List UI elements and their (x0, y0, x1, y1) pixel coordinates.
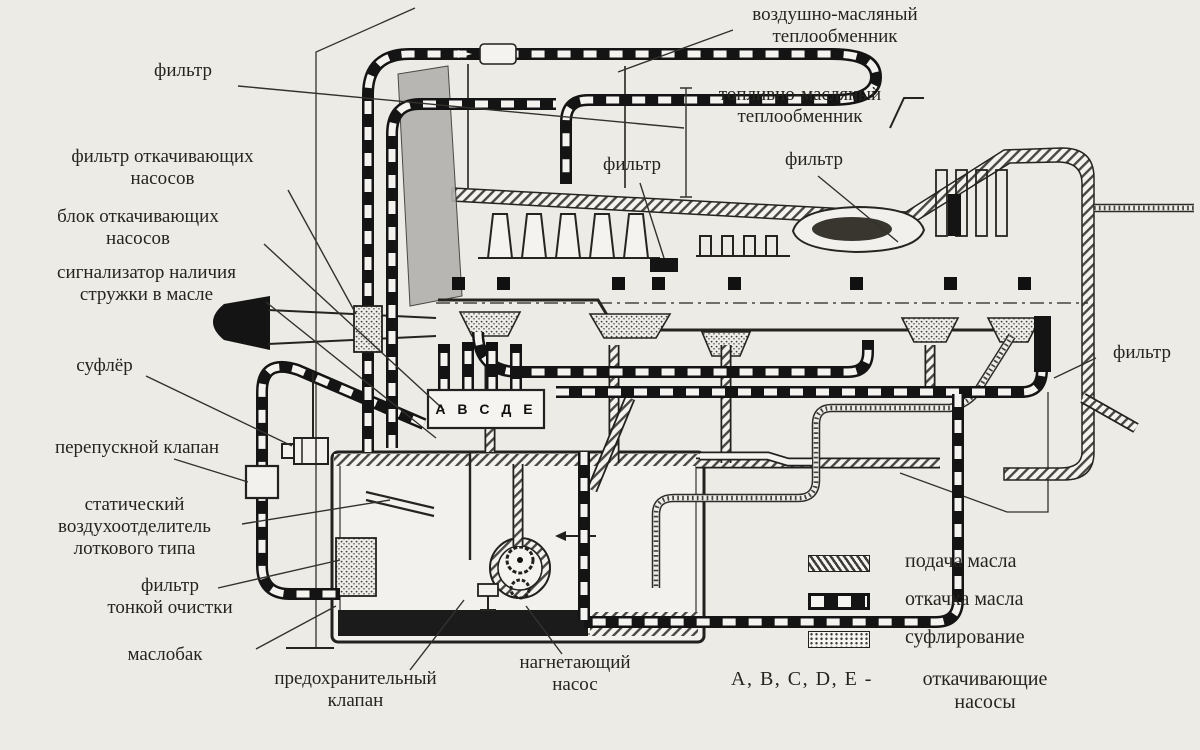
sump-funnels (460, 312, 1040, 356)
legend-label-supply: подача масла (905, 550, 1016, 573)
label-scavenge-pumps-filter: фильтр откачивающих насосов (40, 146, 285, 190)
bypass-valve-element (246, 466, 278, 498)
legend-label-scavenge: откачка масла (905, 588, 1023, 611)
label-pressure-pump: нагнетающий насос (494, 652, 656, 696)
pipe-coupling (480, 44, 516, 64)
oil-level (338, 610, 588, 636)
front-filter-element (650, 258, 678, 272)
rear-filter-element (1034, 316, 1051, 372)
pump-block-letters: А В С Д Е (428, 401, 544, 417)
label-fine-filter: фильтр тонкой очистки (60, 575, 280, 619)
oil-system-diagram-page: воздушно-масляный теплообменник фильтр т… (0, 0, 1200, 750)
label-filter-top-left: фильтр (128, 60, 238, 82)
label-bypass-valve: перепускной клапан (28, 437, 246, 459)
combustor-soot (812, 217, 892, 241)
label-air-oil-heat-exchanger: воздушно-масляный теплообменник (710, 4, 960, 48)
mid-compressor-blades (696, 236, 790, 256)
label-static-air-separator: статический воздухоотделитель лоткового … (22, 494, 247, 560)
bearings (452, 277, 1031, 290)
legend-swatch-scavenge-line (808, 593, 870, 610)
label-safety-valve: предохранительный клапан (243, 668, 468, 712)
compressor-blades (478, 214, 660, 258)
fine-filter-element (336, 538, 376, 596)
turbine-shaft (948, 194, 961, 236)
label-filter-mid: фильтр (758, 149, 870, 171)
label-oil-tank: маслобак (100, 644, 230, 666)
label-filter-front: фильтр (576, 154, 688, 176)
label-chip-detector: сигнализатор наличия стружки в масле (24, 262, 269, 306)
label-scavenge-pumps-block: блок откачивающих насосов (18, 206, 258, 250)
label-filter-rear: фильтр (1088, 342, 1196, 364)
engine-casing (452, 148, 1094, 480)
label-fuel-oil-heat-exchanger: топливно-масляный теплообменник (690, 84, 910, 128)
legend-pump-letters: A, B, C, D, E - (731, 668, 873, 691)
legend-pump-letters-meaning: откачивающие насосы (900, 668, 1070, 714)
label-breather: суфлёр (52, 355, 157, 377)
legend-label-breather: суфлирование (905, 626, 1025, 649)
legend-swatch-supply-line (808, 555, 870, 572)
legend-swatch-breather-line (808, 631, 870, 648)
scavenge-filter-element (354, 306, 382, 352)
